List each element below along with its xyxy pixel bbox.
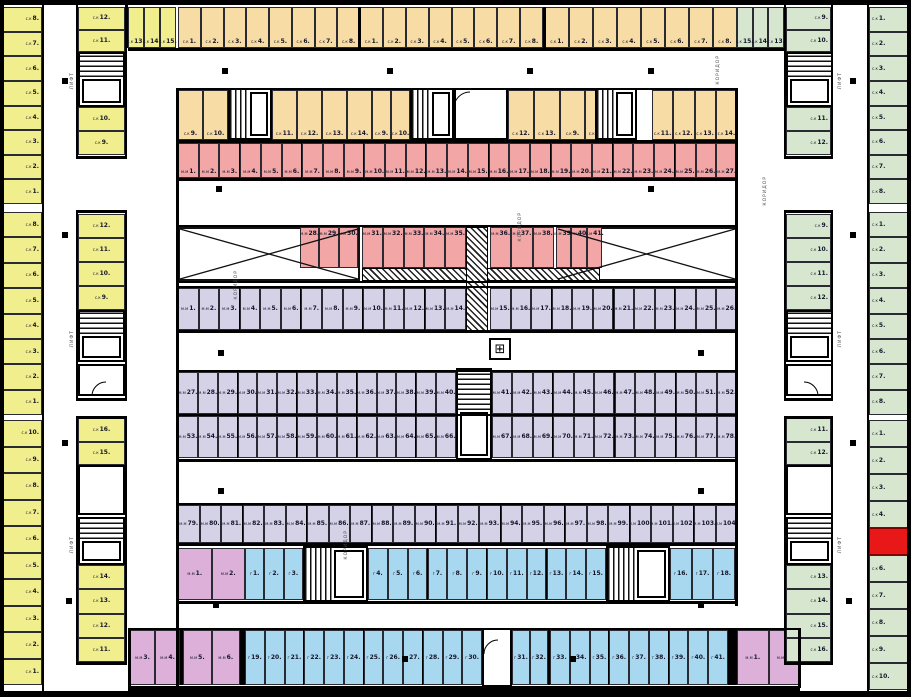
parking-cell[interactable]: м.м39. [416,372,436,414]
storage-cell[interactable]: с.к15. [737,7,753,48]
parking-cell[interactable]: м.м62. [357,416,377,458]
parking-cell[interactable]: м.м12. [404,288,425,330]
storage-cell[interactable]: с.к4. [869,501,909,528]
garage-cell[interactable]: г32. [530,630,548,685]
storage-cell[interactable]: с.к5. [641,7,665,48]
storage-cell[interactable]: с.к5. [2,81,42,106]
parking-cell[interactable]: м.м20. [571,143,592,178]
parking-cell[interactable]: м.м5. [260,288,281,330]
storage-cell[interactable]: с.к14. [144,7,160,48]
storage-cell[interactable]: с.к12. [786,131,831,155]
storage-cell[interactable]: с.к9. [786,7,831,30]
storage-cell[interactable]: с.к10. [786,30,831,53]
parking-cell[interactable]: м.м38. [396,372,416,414]
storage-cell[interactable]: с.к6. [2,263,42,288]
storage-cell[interactable]: с.к4. [869,81,909,106]
storage-cell[interactable]: с.к4. [2,106,42,131]
storage-cell[interactable]: с.к6. [869,339,909,364]
storage-cell[interactable]: с.к14. [716,90,737,140]
parking-cell[interactable]: м.м70. [553,416,573,458]
parking-cell[interactable]: м.м71. [574,416,594,458]
storage-cell[interactable]: с.к13. [786,565,831,589]
garage-cell[interactable]: г18. [713,548,735,600]
parking-cell[interactable]: м.м43. [533,372,553,414]
garage-cell[interactable]: г12. [527,548,547,600]
storage-cell[interactable]: с.к12. [786,286,831,310]
storage-cell[interactable]: с.к2. [2,364,42,389]
parking-cell[interactable]: м.м3. [130,630,155,685]
parking-cell[interactable]: м.м82. [243,505,265,543]
parking-cell[interactable]: м.м11. [385,143,406,178]
parking-cell[interactable]: м.м53. [178,416,198,458]
storage-cell[interactable]: с.к5. [2,553,42,580]
storage-cell[interactable]: с.к9. [372,90,391,140]
storage-cell[interactable]: с.к3. [869,56,909,81]
storage-cell[interactable]: с.к11. [786,107,831,131]
parking-cell[interactable]: м.м23. [655,288,676,330]
parking-cell[interactable]: м.м74. [635,416,655,458]
storage-cell[interactable]: с.к6. [474,7,497,48]
parking-cell[interactable]: м.м87. [350,505,372,543]
parking-cell[interactable]: м.м64. [396,416,416,458]
storage-cell[interactable]: с.к2. [869,32,909,57]
storage-cell[interactable]: с.к13. [322,90,347,140]
parking-cell[interactable]: м.м21. [614,288,635,330]
storage-cell[interactable]: с.к1. [2,179,42,204]
storage-cell[interactable]: с.к13. [534,90,560,140]
storage-cell[interactable]: с.к7. [315,7,338,48]
storage-cell[interactable]: с.к12. [297,90,322,140]
storage-cell[interactable]: с.к13. [695,90,716,140]
parking-cell[interactable]: м.м24. [675,288,696,330]
parking-cell[interactable]: м.м16. [489,143,510,178]
garage-cell[interactable]: г4. [368,548,388,600]
garage-cell[interactable]: г25. [364,630,384,685]
storage-cell[interactable]: с.к3. [2,606,42,633]
parking-cell[interactable]: м.м36. [490,227,511,268]
parking-cell[interactable]: м.м54. [198,416,218,458]
storage-cell[interactable]: с.к2. [869,447,909,474]
parking-cell[interactable]: м.м8. [322,288,343,330]
parking-cell[interactable]: м.м1. [737,630,769,685]
parking-cell[interactable]: м.м22. [613,143,634,178]
storage-cell[interactable]: с.к2. [383,7,406,48]
storage-cell[interactable]: с.к7. [689,7,713,48]
parking-cell[interactable]: м.м21. [592,143,613,178]
storage-cell[interactable]: с.к10. [78,107,125,131]
garage-cell[interactable]: г24. [344,630,364,685]
parking-cell[interactable]: м.м41. [587,227,602,268]
parking-cell[interactable]: м.м83. [264,505,286,543]
parking-cell[interactable]: м.м93. [479,505,501,543]
garage-cell[interactable]: г2. [264,548,283,600]
parking-cell[interactable]: м.м99. [608,505,630,543]
storage-cell[interactable]: с.к10. [391,90,410,140]
garage-cell[interactable]: г7. [428,548,448,600]
storage-cell[interactable]: с.к7. [497,7,520,48]
parking-cell[interactable]: м.м1. [178,288,199,330]
parking-cell[interactable]: м.м6. [281,288,302,330]
storage-cell[interactable]: с.к7. [2,500,42,527]
parking-cell[interactable]: м.м1. [178,143,199,178]
parking-cell[interactable]: м.м98. [587,505,609,543]
parking-cell[interactable]: м.м27. [716,143,737,178]
parking-cell[interactable]: м.м6. [282,143,303,178]
garage-cell[interactable]: г23. [324,630,344,685]
parking-cell[interactable]: м.м34. [317,372,337,414]
parking-cell[interactable]: м.м19. [551,143,572,178]
parking-cell[interactable]: м.м38. [533,227,554,268]
storage-cell[interactable]: с.к7. [869,582,909,609]
garage-cell[interactable]: г11. [507,548,527,600]
storage-cell[interactable]: с.к11. [652,90,673,140]
parking-cell[interactable]: м.м73. [615,416,635,458]
storage-cell[interactable]: с.к1. [2,659,42,686]
parking-cell[interactable]: м.м89. [393,505,415,543]
storage-cell[interactable]: с.к5. [869,314,909,339]
garage-cell[interactable]: г37. [629,630,649,685]
parking-cell[interactable]: м.м36. [357,372,377,414]
storage-cell[interactable]: с.к10. [786,238,831,262]
storage-cell[interactable]: с.к2. [569,7,593,48]
parking-cell[interactable]: м.м23. [633,143,654,178]
parking-cell[interactable]: м.м63. [377,416,397,458]
storage-cell[interactable]: с.к11. [78,30,125,53]
storage-cell[interactable]: с.к15. [78,442,125,466]
parking-cell[interactable]: м.м78. [717,416,737,458]
storage-cell[interactable]: с.к16. [78,418,125,442]
parking-cell[interactable]: м.м60. [317,416,337,458]
storage-cell[interactable]: с.к11. [786,262,831,286]
parking-cell[interactable]: м.м14. [445,288,466,330]
parking-cell[interactable]: м.м29. [218,372,238,414]
storage-cell[interactable]: с.к10. [203,90,228,140]
garage-cell[interactable]: г10. [487,548,507,600]
parking-cell[interactable]: м.м26. [696,143,717,178]
parking-cell[interactable]: м.м2. [212,548,246,600]
parking-cell[interactable]: м.м18. [530,143,551,178]
storage-cell[interactable]: с.к10. [2,420,42,447]
storage-cell[interactable]: с.к5. [869,106,909,131]
storage-cell[interactable]: с.к12. [78,614,125,638]
storage-cell[interactable]: с.к6. [869,555,909,582]
storage-cell[interactable]: с.к12. [786,442,831,466]
garage-cell[interactable]: г31. [512,630,530,685]
parking-cell[interactable]: м.м88. [372,505,394,543]
storage-cell[interactable]: с.к6. [2,526,42,553]
storage-cell[interactable]: с.к11. [78,638,125,662]
storage-cell[interactable]: с.к12. [78,7,125,30]
parking-cell[interactable]: м.м57. [257,416,277,458]
storage-cell[interactable]: с.к9. [786,214,831,238]
parking-cell[interactable]: м.м32. [277,372,297,414]
garage-cell[interactable]: г15. [586,548,606,600]
storage-cell[interactable]: с.к4. [429,7,452,48]
parking-cell[interactable]: м.м44. [553,372,573,414]
parking-cell[interactable]: м.м9. [344,143,365,178]
parking-cell[interactable]: м.м27. [178,372,198,414]
parking-cell[interactable]: м.м96. [544,505,566,543]
storage-cell[interactable]: с.к6. [292,7,315,48]
storage-cell[interactable]: с.к8. [869,609,909,636]
parking-cell[interactable]: м.м7. [302,143,323,178]
parking-cell[interactable]: м.м4. [240,143,261,178]
parking-cell[interactable]: м.м42. [512,372,532,414]
storage-cell[interactable]: с.к8. [869,179,909,204]
parking-cell[interactable]: м.м76. [676,416,696,458]
storage-cell[interactable]: с.к7. [869,364,909,389]
storage-cell[interactable]: с.к9. [2,447,42,474]
storage-cell[interactable]: с.к5. [452,7,475,48]
storage-cell[interactable]: с.к5. [2,288,42,313]
storage-cell[interactable]: с.к8. [2,7,42,32]
parking-cell[interactable]: м.м47. [615,372,635,414]
parking-cell[interactable]: м.м30. [339,227,358,268]
storage-cell[interactable]: с.к1. [869,212,909,237]
parking-cell[interactable]: м.м7. [301,288,322,330]
parking-cell[interactable]: м.м1. [178,548,212,600]
storage-cell[interactable]: с.к8. [337,7,360,48]
storage-cell[interactable]: с.к14. [786,589,831,613]
garage-cell[interactable]: г40. [688,630,708,685]
parking-cell[interactable]: м.м5. [261,143,282,178]
garage-cell[interactable]: г6. [408,548,428,600]
storage-cell[interactable]: с.к14. [347,90,372,140]
parking-cell[interactable]: м.м28. [300,227,319,268]
parking-cell[interactable]: м.м30. [238,372,258,414]
parking-cell[interactable]: м.м31. [362,227,383,268]
storage-cell[interactable]: с.к8. [520,7,543,48]
storage-cell[interactable]: с.к8. [2,473,42,500]
garage-cell[interactable]: г39. [669,630,689,685]
parking-cell[interactable]: м.м34. [424,227,445,268]
storage-cell[interactable]: с.к12. [78,214,125,238]
parking-cell[interactable]: м.м12. [406,143,427,178]
storage-cell[interactable]: с.к16. [786,638,831,662]
parking-cell[interactable]: м.м72. [594,416,614,458]
storage-cell[interactable]: с.к12. [508,90,534,140]
parking-cell[interactable]: м.м85. [307,505,329,543]
storage-cell[interactable]: с.к13. [768,7,784,48]
storage-cell[interactable]: с.к11. [786,418,831,442]
parking-cell[interactable]: м.м67. [492,416,512,458]
parking-cell[interactable]: м.м81. [221,505,243,543]
storage-cell[interactable]: с.к1. [869,420,909,447]
garage-cell[interactable]: г8. [447,548,467,600]
storage-cell[interactable]: с.к9. [78,131,125,155]
parking-cell[interactable]: м.м79. [178,505,200,543]
parking-cell[interactable]: м.м52. [717,372,737,414]
garage-cell[interactable]: г21. [285,630,305,685]
parking-cell[interactable]: м.м77. [696,416,716,458]
storage-cell[interactable]: с.к4. [2,314,42,339]
storage-cell[interactable]: с.к3. [406,7,429,48]
garage-cell[interactable]: г33. [550,630,570,685]
highlighted-storage-cell[interactable] [869,528,909,555]
parking-cell[interactable]: м.м61. [337,416,357,458]
storage-cell[interactable]: с.к3. [593,7,617,48]
storage-cell[interactable]: с.к3. [2,339,42,364]
parking-cell[interactable]: м.м37. [377,372,397,414]
garage-cell[interactable]: г41. [708,630,728,685]
parking-cell[interactable]: м.м46. [594,372,614,414]
parking-cell[interactable]: м.м3. [219,143,240,178]
garage-cell[interactable]: г22. [304,630,324,685]
parking-cell[interactable]: м.м103. [694,505,716,543]
parking-cell[interactable]: м.м75. [655,416,675,458]
storage-cell[interactable]: с.к14. [78,565,125,589]
parking-cell[interactable]: м.м24. [654,143,675,178]
garage-cell[interactable]: г35. [590,630,610,685]
parking-cell[interactable]: м.м40. [436,372,456,414]
parking-cell[interactable]: м.м25. [675,143,696,178]
storage-cell[interactable]: с.к3. [869,263,909,288]
storage-cell[interactable]: с.к13. [128,7,144,48]
parking-cell[interactable]: м.м16. [511,288,532,330]
storage-cell[interactable]: с.к11. [78,238,125,262]
parking-cell[interactable]: м.м29. [319,227,338,268]
storage-cell[interactable]: с.к3. [869,474,909,501]
parking-cell[interactable]: м.м91. [436,505,458,543]
parking-cell[interactable]: м.м50. [676,372,696,414]
parking-cell[interactable]: м.м18. [552,288,573,330]
storage-cell[interactable]: с.к4. [246,7,269,48]
garage-cell[interactable]: г19. [245,630,265,685]
parking-cell[interactable]: м.м10. [363,288,384,330]
garage-cell[interactable]: г13. [547,548,567,600]
storage-cell[interactable]: с.к4. [617,7,641,48]
parking-cell[interactable]: м.м2. [199,143,220,178]
parking-cell[interactable]: м.м65. [416,416,436,458]
parking-cell[interactable]: м.м49. [655,372,675,414]
storage-cell[interactable]: с.к8. [869,390,909,415]
storage-cell[interactable]: с.к13. [78,589,125,613]
storage-cell[interactable]: с.к15. [786,614,831,638]
storage-cell[interactable]: с.к6. [869,130,909,155]
storage-cell[interactable]: с.к9. [560,90,585,140]
parking-cell[interactable]: м.м17. [509,143,530,178]
storage-cell[interactable]: с.к6. [665,7,689,48]
parking-cell[interactable]: м.м11. [384,288,405,330]
parking-cell[interactable]: м.м45. [574,372,594,414]
parking-cell[interactable]: м.м69. [533,416,553,458]
garage-cell[interactable]: г26. [383,630,403,685]
garage-cell[interactable]: г28. [423,630,443,685]
parking-cell[interactable]: м.м58. [277,416,297,458]
parking-cell[interactable]: м.м31. [257,372,277,414]
storage-cell[interactable]: с.к4. [869,288,909,313]
garage-cell[interactable]: г20. [265,630,285,685]
parking-cell[interactable]: м.м66. [436,416,456,458]
storage-cell[interactable]: с.к9. [78,286,125,310]
parking-cell[interactable]: м.м19. [572,288,593,330]
parking-cell[interactable]: м.м22. [634,288,655,330]
garage-cell[interactable]: г36. [609,630,629,685]
parking-cell[interactable]: м.м95. [522,505,544,543]
storage-cell[interactable]: с.к7. [2,32,42,57]
storage-cell[interactable]: с.к3. [224,7,247,48]
storage-cell[interactable]: с.к1. [2,390,42,415]
parking-cell[interactable]: м.м32. [383,227,404,268]
storage-cell[interactable]: с.к11. [272,90,297,140]
storage-cell[interactable]: с.к2. [2,632,42,659]
storage-cell[interactable]: с.к1. [360,7,383,48]
storage-cell[interactable]: с.к1. [869,7,909,32]
garage-cell[interactable]: г5. [388,548,408,600]
parking-cell[interactable]: м.м59. [297,416,317,458]
parking-cell[interactable]: м.м55. [218,416,238,458]
parking-cell[interactable]: м.м17. [531,288,552,330]
parking-cell[interactable]: м.м100. [630,505,652,543]
garage-cell[interactable]: г30. [462,630,482,685]
garage-cell[interactable]: г14. [566,548,586,600]
storage-cell[interactable]: с.к2. [2,155,42,180]
garage-cell[interactable]: г3. [284,548,303,600]
parking-cell[interactable]: м.м4. [240,288,261,330]
parking-cell[interactable]: м.м94. [501,505,523,543]
parking-cell[interactable]: м.м33. [404,227,425,268]
garage-cell[interactable]: г29. [443,630,463,685]
parking-cell[interactable]: м.м97. [565,505,587,543]
garage-cell[interactable]: г17. [692,548,714,600]
storage-cell[interactable]: с.к4. [2,579,42,606]
parking-cell[interactable]: м.м35. [445,227,466,268]
parking-cell[interactable]: м.м28. [198,372,218,414]
storage-cell[interactable]: с.к5. [269,7,292,48]
parking-cell[interactable]: м.м104. [716,505,738,543]
parking-cell[interactable]: м.м5. [183,630,212,685]
storage-cell[interactable]: с.к7. [2,237,42,262]
parking-cell[interactable]: м.м20. [593,288,614,330]
storage-cell[interactable]: с.к14. [753,7,769,48]
parking-cell[interactable]: м.м56. [238,416,258,458]
parking-cell[interactable]: м.м68. [512,416,532,458]
parking-cell[interactable]: м.м35. [337,372,357,414]
parking-cell[interactable]: м.м41. [492,372,512,414]
storage-cell[interactable]: с.к6. [2,56,42,81]
parking-cell[interactable]: м.м13. [426,143,447,178]
storage-cell[interactable]: с.к1. [178,7,201,48]
garage-cell[interactable]: г16. [670,548,692,600]
storage-cell[interactable]: с.к15. [160,7,176,48]
storage-cell[interactable]: с.к10. [869,663,909,690]
storage-cell[interactable]: с.к9. [869,636,909,663]
storage-cell[interactable]: с.к2. [869,237,909,262]
parking-cell[interactable]: м.м25. [696,288,717,330]
storage-cell[interactable]: с.к9. [178,90,203,140]
parking-cell[interactable]: м.м48. [635,372,655,414]
storage-cell[interactable]: с.к8. [2,212,42,237]
parking-cell[interactable]: м.м101. [651,505,673,543]
parking-cell[interactable]: м.м2. [199,288,220,330]
parking-cell[interactable]: м.м9. [343,288,364,330]
storage-cell[interactable]: с.к1. [545,7,569,48]
parking-cell[interactable]: м.м80. [200,505,222,543]
storage-cell[interactable]: с.к8. [713,7,737,48]
storage-cell[interactable]: с.к10. [78,262,125,286]
parking-cell[interactable]: м.м84. [286,505,308,543]
garage-cell[interactable]: г1. [245,548,264,600]
parking-cell[interactable]: м.м51. [696,372,716,414]
parking-cell[interactable]: м.м13. [425,288,446,330]
garage-cell[interactable]: г9. [467,548,487,600]
parking-cell[interactable]: м.м26. [716,288,737,330]
storage-cell[interactable]: с.к2. [201,7,224,48]
parking-cell[interactable]: м.м15. [468,143,489,178]
parking-cell[interactable]: м.м92. [458,505,480,543]
parking-cell[interactable]: м.м15. [490,288,511,330]
storage-cell[interactable]: с.к7. [869,155,909,180]
